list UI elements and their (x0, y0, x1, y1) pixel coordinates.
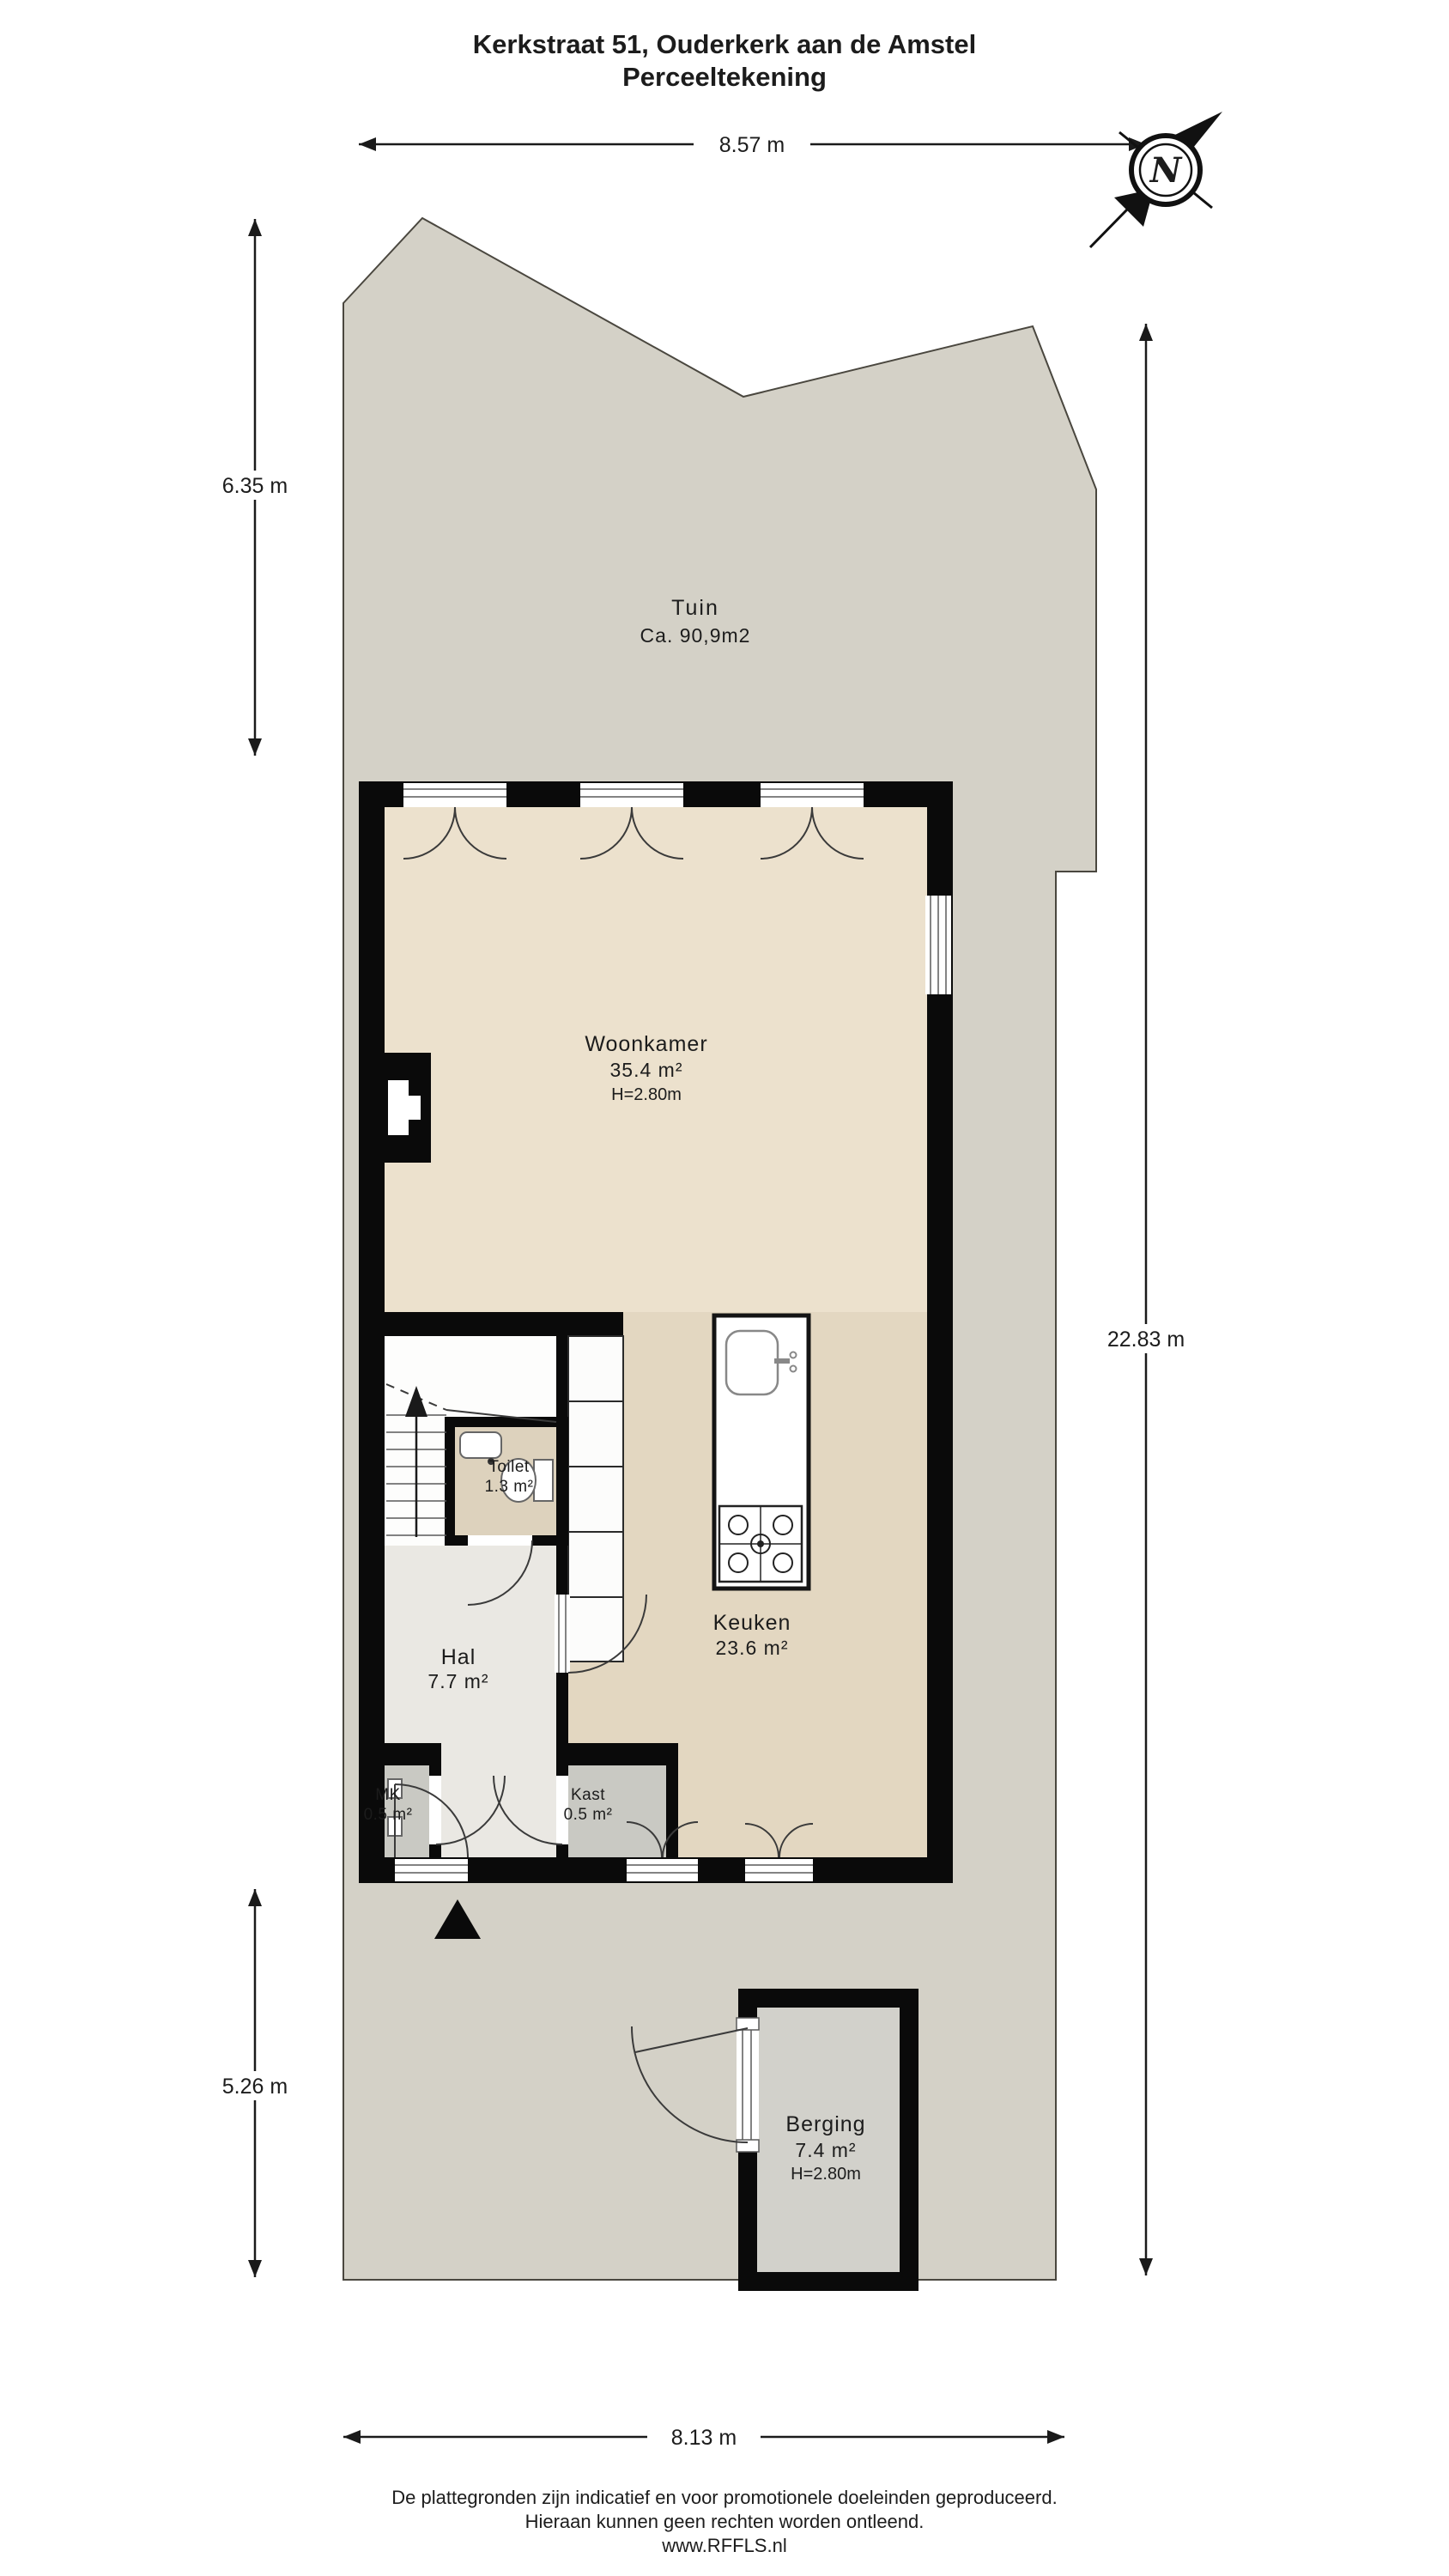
toilet-wc-tank (534, 1460, 553, 1501)
kast-wall-top (556, 1743, 678, 1765)
cabinet-column (568, 1336, 623, 1662)
room-height-berging: H=2.80m (791, 2165, 861, 2184)
floorplan-page: Kerkstraat 51, Ouderkerk aan de Amstel P… (0, 0, 1449, 2576)
room-label-woonkamer: Woonkamer (585, 1032, 707, 1056)
footer-disclaimer-1: De plattegronden zijn indicatief en voor… (391, 2487, 1057, 2508)
dimension-garden-left-label: 6.35 m (222, 474, 288, 498)
house: Woonkamer 35.4 m² H=2.80m Keuken 23.6 m²… (359, 781, 953, 1883)
window-right-wall (925, 896, 951, 994)
footer-disclaimer-2: Hieraan kunnen geen rechten worden ontle… (525, 2511, 925, 2532)
dimension-right-label: 22.83 m (1107, 1327, 1185, 1352)
room-area-hal: 7.7 m² (427, 1670, 488, 1692)
kitchen-island (714, 1315, 809, 1589)
compass-north-label: N (1149, 150, 1183, 191)
room-label-berging: Berging (785, 2112, 865, 2136)
room-height-woonkamer: H=2.80m (611, 1085, 682, 1104)
dimension-bottom-label: 8.13 m (671, 2426, 737, 2450)
island-faucet (774, 1358, 790, 1364)
room-area-toilet: 1.3 m² (485, 1478, 534, 1496)
room-label-tuin: Tuin (671, 596, 719, 620)
island-sink (726, 1331, 778, 1394)
room-label-mk: MK (375, 1786, 401, 1804)
room-area-berging: 7.4 m² (795, 2139, 856, 2161)
page-subtitle: Perceeltekening (622, 62, 827, 92)
room-area-woonkamer: 35.4 m² (610, 1059, 683, 1081)
wall-woonkamer-south (385, 1312, 623, 1336)
room-area-tuin: Ca. 90,9m2 (640, 624, 751, 647)
room-area-kast: 0.5 m² (564, 1806, 613, 1824)
page-title: Kerkstraat 51, Ouderkerk aan de Amstel (473, 29, 976, 59)
room-label-kast: Kast (571, 1786, 605, 1804)
toilet-door-opening (468, 1535, 532, 1546)
room-area-mk: 0.5 m² (364, 1806, 413, 1824)
chimney-slot-small (409, 1096, 421, 1120)
dimension-rear-left-label: 5.26 m (222, 2075, 288, 2099)
mk-door-opening (429, 1776, 441, 1844)
toilet-sink (460, 1432, 501, 1458)
room-label-hal: Hal (441, 1645, 476, 1669)
dimension-top-label: 8.57 m (719, 133, 785, 157)
room-area-keuken: 23.6 m² (716, 1637, 789, 1659)
chimney-slot (388, 1080, 409, 1135)
room-label-keuken: Keuken (713, 1611, 791, 1635)
room-label-toilet: Toilet (488, 1458, 530, 1476)
footer-website: www.RFFLS.nl (661, 2535, 786, 2556)
island-hob (719, 1506, 802, 1582)
